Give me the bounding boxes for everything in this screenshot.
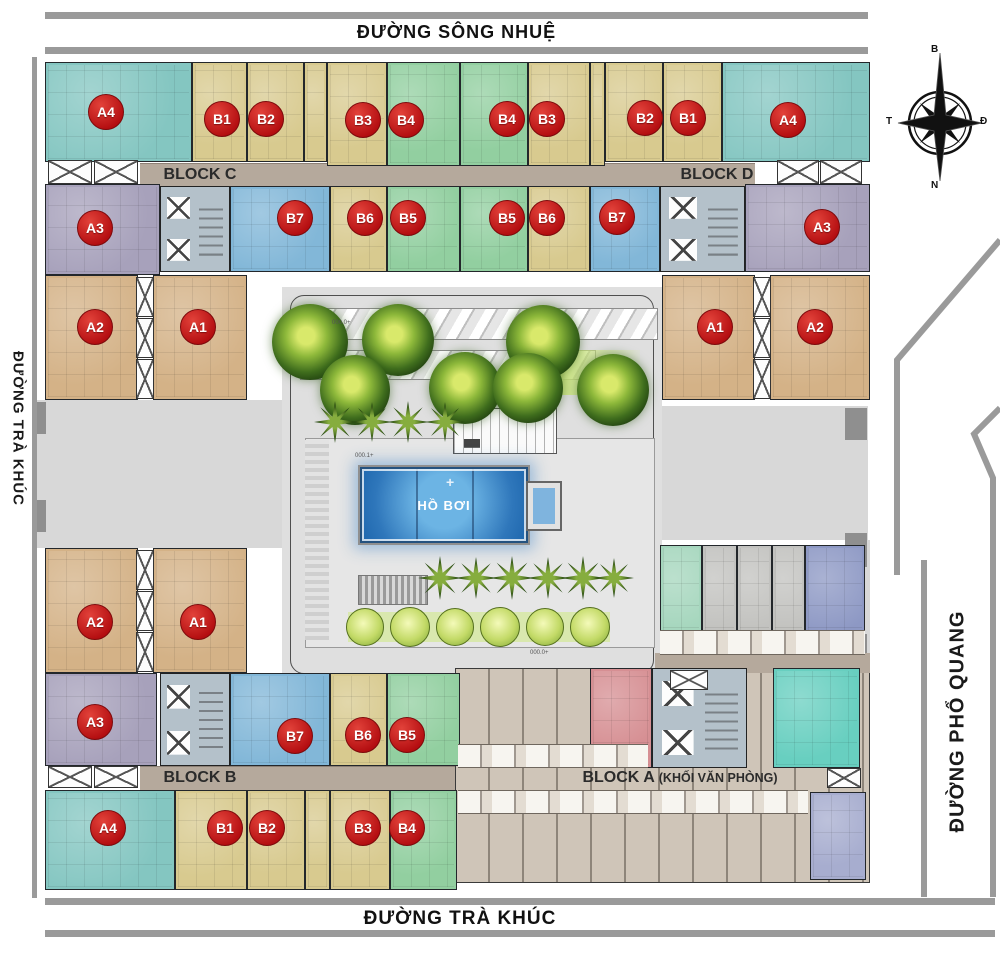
elevator-shaft	[753, 359, 771, 399]
entrance-plaza-east	[655, 406, 868, 540]
unit-badge-B7[interactable]: B7	[277, 718, 313, 754]
compass-rose-icon	[885, 45, 995, 195]
stair-core	[660, 186, 745, 272]
unit-badge-A2[interactable]: A2	[797, 309, 833, 345]
unit-badge-B2[interactable]: B2	[248, 101, 284, 137]
unit-badge-A4[interactable]: A4	[770, 102, 806, 138]
block-d-label: BLOCK D	[662, 162, 772, 188]
block-c-label: BLOCK C	[150, 162, 250, 188]
block-a-label-main: BLOCK A	[582, 769, 654, 787]
block-a-label-suffix: (KHỐI VĂN PHÒNG)	[659, 771, 778, 785]
compass-west-label: T	[886, 116, 892, 127]
unit-badge-A1[interactable]: A1	[180, 309, 216, 345]
unit-badge-A4[interactable]: A4	[90, 810, 126, 846]
stair-core	[160, 673, 230, 766]
tree	[429, 352, 501, 424]
tree	[493, 353, 563, 423]
unit-space	[773, 668, 860, 768]
elevator-shaft	[670, 670, 708, 690]
unit-badge-B5[interactable]: B5	[489, 200, 525, 236]
elevation-label: 000.1+	[355, 453, 374, 459]
road-label-right-wrap: ĐƯỜNG PHỔ QUANG	[930, 580, 986, 860]
unit-badge-B6[interactable]: B6	[345, 717, 381, 753]
pool-center-marker: +	[446, 474, 454, 490]
unit-badge-A1[interactable]: A1	[180, 604, 216, 640]
elevator-shaft	[48, 766, 92, 788]
elevator-shaft	[94, 766, 138, 788]
road-label-left: ĐƯỜNG TRÀ KHÚC	[10, 299, 27, 559]
unit-badge-A1[interactable]: A1	[697, 309, 733, 345]
unit-badge-B5[interactable]: B5	[390, 200, 426, 236]
unit-badge-A4[interactable]: A4	[88, 94, 124, 130]
curb-patch	[845, 408, 867, 440]
palm-tree	[594, 558, 634, 598]
unit-badge-A3[interactable]: A3	[77, 704, 113, 740]
unit-badge-B6[interactable]: B6	[347, 200, 383, 236]
swimming-pool: HỒ BƠI	[360, 467, 528, 543]
unit-badge-B2[interactable]: B2	[249, 810, 285, 846]
road-label-top: ĐƯỜNG SÔNG NHUỆ	[45, 22, 868, 43]
elevator-shaft	[136, 550, 154, 590]
unit-badge-B1[interactable]: B1	[204, 101, 240, 137]
road-label-left-wrap: ĐƯỜNG TRÀ KHÚC	[8, 300, 28, 560]
road-edge-bottom-inner	[45, 898, 995, 905]
unit-space	[590, 62, 605, 166]
compass-east-label: Đ	[980, 116, 987, 127]
jacuzzi	[528, 483, 560, 529]
palm-tree	[352, 402, 392, 442]
unit-badge-A3[interactable]: A3	[77, 210, 113, 246]
shrub	[346, 608, 384, 646]
unit-badge-B3[interactable]: B3	[529, 101, 565, 137]
elevator-shaft	[136, 277, 154, 317]
elevator-shaft	[94, 160, 138, 184]
unit-badge-B3[interactable]: B3	[345, 810, 381, 846]
shrub	[526, 608, 564, 646]
deck-steps	[305, 440, 329, 640]
road-edge-left	[32, 57, 37, 898]
unit-badge-B7[interactable]: B7	[277, 200, 313, 236]
curb-patch	[37, 402, 46, 434]
elevation-label: 000.0+	[332, 320, 351, 326]
site-plan: ĐƯỜNG SÔNG NHUỆ ĐƯỜNG TRÀ KHÚC ĐƯỜNG TRÀ…	[0, 0, 1000, 966]
paving-chevron-band	[300, 308, 658, 340]
elevator-shaft	[820, 160, 862, 184]
unit-B7	[230, 673, 330, 766]
curb-patch	[37, 500, 46, 532]
unit-badge-B4[interactable]: B4	[388, 102, 424, 138]
road-label-bottom: ĐƯỜNG TRÀ KHÚC	[45, 908, 875, 930]
elevator-shaft	[136, 632, 154, 672]
block-b-label: BLOCK B	[150, 765, 250, 791]
unit-badge-B5[interactable]: B5	[389, 717, 425, 753]
unit-badge-B6[interactable]: B6	[529, 200, 565, 236]
palm-tree	[425, 402, 465, 442]
deck-ramp	[358, 575, 428, 605]
road-edge-top-outer	[45, 12, 868, 19]
compass-north-label: B	[931, 44, 938, 55]
unit-space	[810, 792, 866, 880]
elevator-shaft	[753, 277, 771, 317]
shrub	[480, 607, 520, 647]
elevation-label: 000.0+	[530, 650, 549, 656]
entrance-plaza-west	[37, 400, 282, 548]
unit-badge-B3[interactable]: B3	[345, 102, 381, 138]
unit-badge-B1[interactable]: B1	[670, 100, 706, 136]
bathroom-pods	[660, 630, 865, 655]
elevator-shaft	[136, 359, 154, 399]
unit-badge-B4[interactable]: B4	[389, 810, 425, 846]
road-edge-top-inner	[45, 47, 868, 54]
unit-badge-A2[interactable]: A2	[77, 604, 113, 640]
stair-core	[160, 186, 230, 272]
shrub	[436, 608, 474, 646]
unit-badge-B4[interactable]: B4	[489, 101, 525, 137]
shrub	[570, 607, 610, 647]
block-a-label: BLOCK A (KHỐI VĂN PHÒNG)	[490, 765, 870, 791]
elevator-shaft	[753, 318, 771, 358]
elevator-shaft	[136, 591, 154, 631]
unit-badge-B1[interactable]: B1	[207, 810, 243, 846]
unit-badge-A2[interactable]: A2	[77, 309, 113, 345]
compass-south-label: N	[931, 180, 938, 191]
road-label-right: ĐƯỜNG PHỔ QUANG	[947, 592, 970, 852]
pool-label: HỒ BƠI	[362, 469, 526, 541]
unit-space	[305, 790, 330, 890]
elevator-shaft	[48, 160, 92, 184]
elevator-shaft	[136, 318, 154, 358]
shrub	[390, 607, 430, 647]
road-edge-bottom-outer	[45, 930, 995, 937]
bathroom-pods	[458, 790, 808, 814]
unit-badge-A3[interactable]: A3	[804, 209, 840, 245]
elevator-shaft	[777, 160, 819, 184]
unit-badge-B2[interactable]: B2	[627, 100, 663, 136]
unit-badge-B7[interactable]: B7	[599, 199, 635, 235]
tree	[577, 354, 649, 426]
unit-space	[304, 62, 327, 162]
